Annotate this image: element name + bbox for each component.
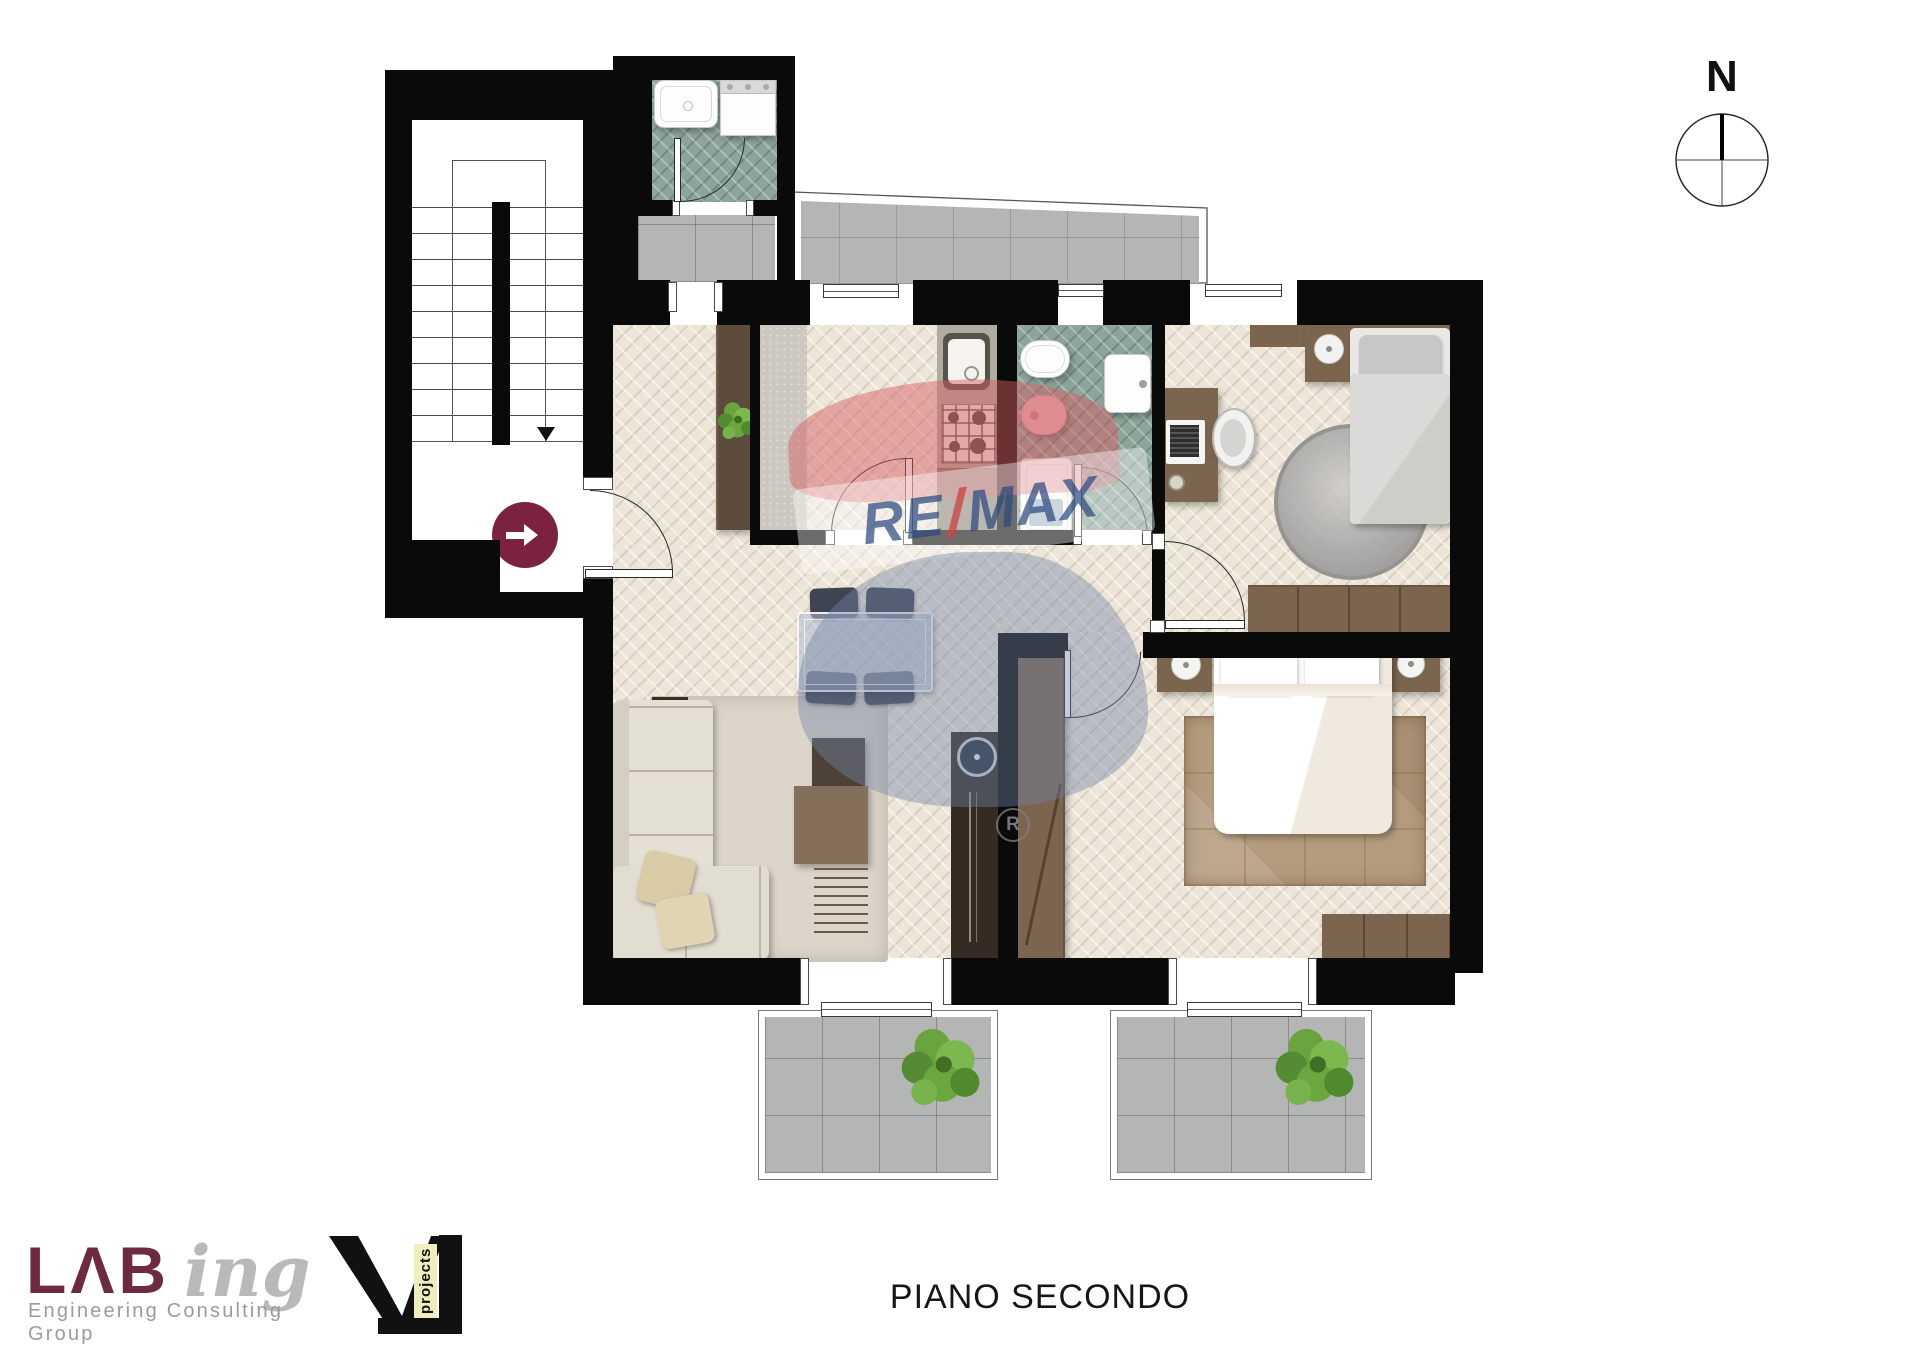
wall-living-master bbox=[998, 633, 1018, 963]
door-jamb bbox=[714, 282, 723, 312]
coffee-table-top bbox=[812, 738, 865, 788]
page-title: PIANO SECONDO bbox=[840, 1278, 1240, 1317]
washer-knob bbox=[727, 84, 733, 90]
north-compass-icon bbox=[1674, 112, 1770, 208]
vl-projects-logo: projects bbox=[322, 1230, 467, 1342]
bed1-wardrobe bbox=[1248, 585, 1453, 632]
bidet-pink bbox=[1021, 395, 1067, 435]
burner bbox=[970, 438, 986, 454]
door-jamb bbox=[583, 477, 613, 490]
washer-knob bbox=[745, 84, 751, 90]
floorplan-page: RE / MAX R N PIANO SECONDO LΛB ing Engin… bbox=[0, 0, 1920, 1358]
coffee-table bbox=[794, 786, 868, 864]
plant-balcony-left bbox=[900, 1024, 984, 1116]
door-jamb bbox=[668, 282, 677, 312]
vl-logo-shape bbox=[322, 1230, 467, 1342]
leaning-pole bbox=[1025, 783, 1062, 945]
wall-bottom-1 bbox=[583, 958, 803, 1005]
wall-kitchen-bath bbox=[997, 325, 1017, 545]
window-sill-kitchen bbox=[823, 284, 899, 298]
wall-stair-top bbox=[385, 70, 613, 120]
wall-mid-2 bbox=[913, 530, 1073, 545]
door-jamb bbox=[943, 958, 952, 1005]
laptop bbox=[1166, 420, 1205, 464]
labing-logo: LΛB ing Engineering Consulting Group bbox=[24, 1232, 324, 1336]
wall-hall-kitchen bbox=[750, 325, 760, 530]
door-jamb bbox=[672, 200, 680, 216]
compass-north-label: N bbox=[1706, 52, 1738, 102]
wall-stair-left bbox=[385, 70, 412, 618]
burner bbox=[972, 411, 986, 425]
bathtub bbox=[1020, 340, 1070, 378]
laundry-basin bbox=[654, 80, 718, 128]
wall-clock bbox=[957, 737, 997, 777]
entrance-marker bbox=[492, 502, 558, 568]
door-jamb bbox=[825, 530, 835, 545]
stair-stringer bbox=[492, 202, 510, 445]
plant-balcony-right bbox=[1274, 1024, 1358, 1116]
wall-laundry-bottom-l bbox=[613, 200, 674, 216]
door-leaf-laundry bbox=[674, 138, 681, 202]
master-bed bbox=[1214, 646, 1392, 834]
terrace-north bbox=[783, 180, 1217, 285]
tv-unit-handle bbox=[969, 792, 971, 942]
balcony-door-left-sill bbox=[821, 1002, 932, 1017]
wall-bottom-3 bbox=[1315, 958, 1455, 1005]
lamp-center bbox=[1326, 346, 1332, 352]
bed1-single-bed bbox=[1350, 328, 1450, 524]
wall-mid-1 bbox=[750, 530, 825, 545]
tub-inner bbox=[1025, 345, 1065, 373]
wall-laundry-left bbox=[613, 56, 652, 216]
bed1-desk bbox=[1164, 388, 1218, 502]
door-leaf-entrance bbox=[585, 569, 673, 578]
wall-right bbox=[1450, 280, 1483, 973]
shower-mat bbox=[1029, 499, 1063, 526]
vl-logo-projects-text: projects bbox=[414, 1244, 437, 1318]
wall-bath-bed1-upper bbox=[1152, 325, 1165, 550]
balcony-door-right-sill bbox=[1187, 1002, 1302, 1017]
lamp-center bbox=[1183, 662, 1189, 668]
labing-logo-tagline: Engineering Consulting Group bbox=[28, 1300, 324, 1346]
floor-terrace-west bbox=[638, 215, 775, 282]
wall-stair-corner bbox=[385, 540, 500, 618]
dining-table-glass bbox=[797, 612, 933, 692]
lamp-center bbox=[1408, 661, 1414, 667]
wall-top-4 bbox=[1103, 280, 1190, 325]
wall-top-1 bbox=[583, 280, 670, 325]
floor-hallway bbox=[1000, 545, 1153, 633]
sink-faucet bbox=[1139, 380, 1147, 388]
burner bbox=[949, 441, 960, 452]
stair-flight-line-left bbox=[452, 160, 453, 441]
bidet-faucet bbox=[1030, 411, 1039, 420]
door-leaf-bathroom bbox=[1074, 464, 1082, 537]
labing-logo-bold: LΛB bbox=[26, 1232, 170, 1308]
wall-laundry-right bbox=[777, 56, 795, 216]
kitchen-hob bbox=[941, 404, 997, 464]
bed1-lamp bbox=[1314, 334, 1344, 364]
sink-drain bbox=[964, 366, 979, 381]
washer-knob bbox=[763, 84, 769, 90]
wall-bed1-master bbox=[1143, 632, 1455, 658]
sofa-pillow bbox=[654, 892, 716, 951]
laptop-keys bbox=[1170, 425, 1199, 457]
wall-bath-bed1-lower bbox=[1152, 550, 1165, 620]
door-jamb bbox=[1152, 533, 1165, 550]
door-leaf-bedroom-master bbox=[1064, 650, 1071, 718]
door-jamb bbox=[1308, 958, 1317, 1005]
master-bottom-cabinet bbox=[1322, 914, 1452, 960]
desk-cup bbox=[1168, 474, 1185, 491]
basin-drain bbox=[683, 101, 693, 111]
stair-flight-line-right bbox=[545, 160, 546, 441]
wall-bottom-2 bbox=[950, 958, 1173, 1005]
door-leaf-kitchen bbox=[905, 458, 913, 533]
floor-kitchen-strip bbox=[760, 325, 807, 530]
bed1-chair bbox=[1212, 408, 1256, 468]
bathroom-sink bbox=[1104, 354, 1151, 413]
door-jamb bbox=[1168, 958, 1177, 1005]
kitchen-sink bbox=[943, 333, 990, 390]
wall-left-lower bbox=[583, 618, 613, 963]
door-leaf-bedroom-single bbox=[1165, 620, 1245, 629]
wall-terrace-west bbox=[613, 216, 638, 286]
wall-terrace-divider bbox=[777, 216, 795, 282]
clock-center bbox=[974, 754, 980, 760]
entrance-arrow-head-icon bbox=[524, 524, 538, 546]
door-jamb bbox=[746, 200, 754, 216]
wall-top-3 bbox=[913, 280, 1058, 325]
chair-seat bbox=[1220, 419, 1246, 457]
duvet-fold bbox=[1214, 684, 1392, 696]
burner bbox=[948, 412, 959, 423]
window-sill-bedroom-single bbox=[1205, 284, 1282, 297]
window-sill-bathroom bbox=[1058, 284, 1104, 297]
kitchen-lower-cabinet bbox=[937, 468, 997, 531]
master-side-unit bbox=[1018, 642, 1065, 960]
door-jamb bbox=[1150, 620, 1165, 633]
door-jamb bbox=[1142, 530, 1152, 545]
table-inner-frame bbox=[804, 619, 926, 685]
stair-flight-line-top bbox=[452, 160, 546, 161]
entrance-arrow-icon bbox=[506, 532, 526, 539]
bed1-duvet bbox=[1350, 374, 1450, 524]
washing-machine bbox=[720, 80, 776, 136]
shower-tray bbox=[1020, 458, 1072, 534]
stair-direction-arrow bbox=[537, 427, 555, 441]
tv-unit-handle bbox=[976, 792, 977, 942]
floor-slats bbox=[814, 868, 868, 940]
door-jamb bbox=[800, 958, 809, 1005]
wall-top-2 bbox=[717, 280, 810, 325]
wall-laundry-bottom-r bbox=[748, 200, 795, 216]
